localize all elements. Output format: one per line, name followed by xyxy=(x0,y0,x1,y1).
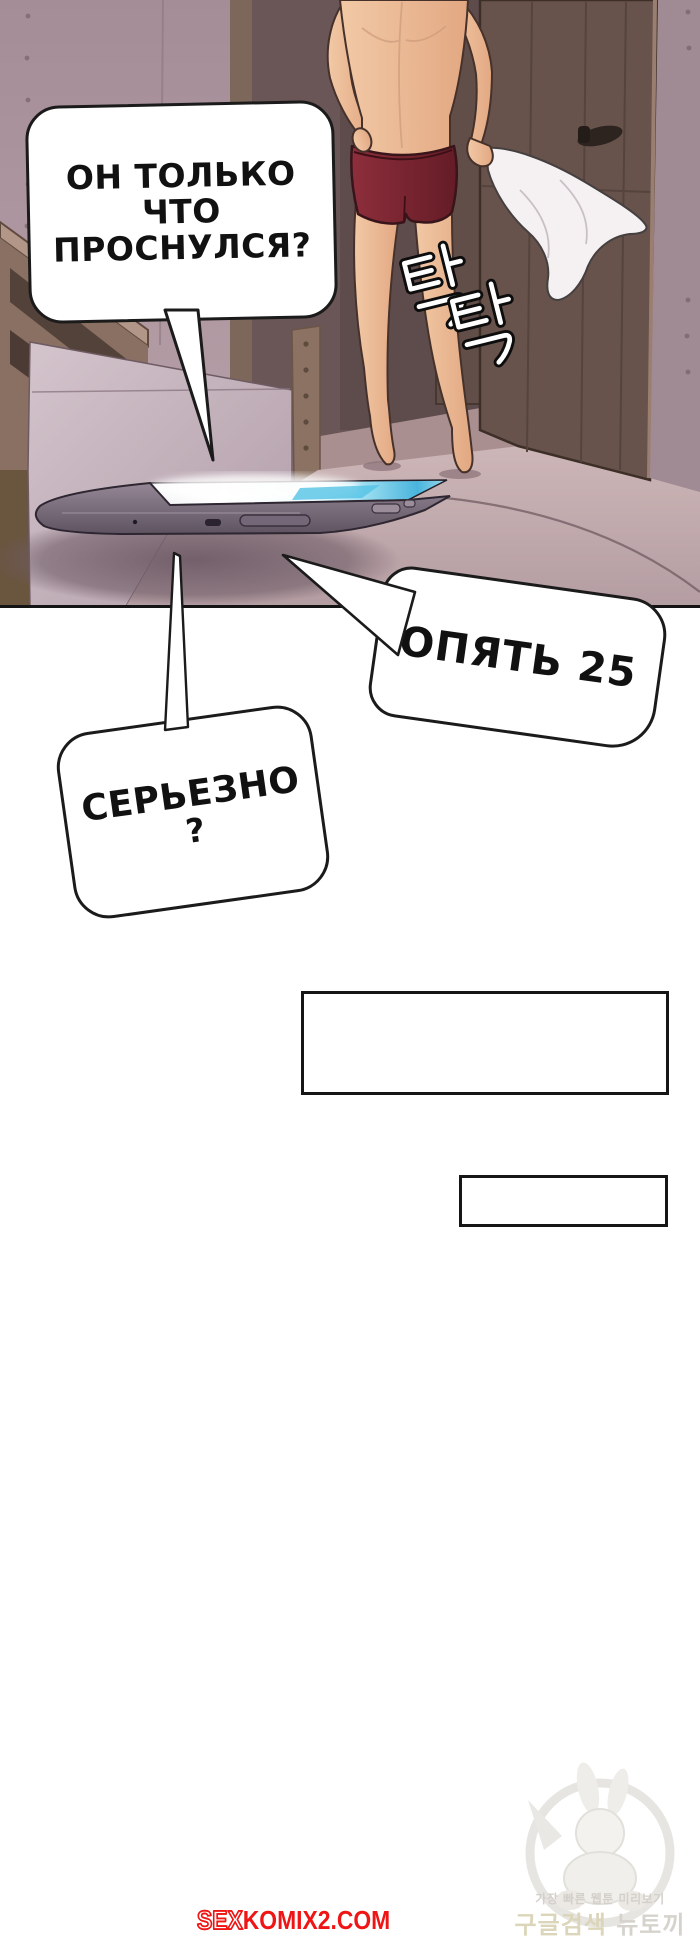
watermark-search-text: 구글검색 xyxy=(515,1911,607,1939)
bubble-line: ОПЯТЬ 25 xyxy=(396,619,639,697)
bubble-line: ЧТО xyxy=(142,193,221,231)
bubble-line: ? xyxy=(183,811,208,850)
phone-port xyxy=(205,519,221,526)
watermark-brand-line: 구글검색 뉴토끼 xyxy=(500,1905,700,1940)
logo-outlined-text: SEX xyxy=(197,1905,243,1935)
speech-bubble-he-just-woke-up: ОН ТОЛЬКО ЧТО ПРОСНУЛСЯ? xyxy=(25,100,338,324)
phone-speaker xyxy=(240,515,310,526)
comic-page: 탁 탁 xyxy=(0,0,700,1960)
phone-mic xyxy=(133,520,137,524)
bubble-line: ПРОСНУЛСЯ? xyxy=(53,227,312,269)
shorts-seam xyxy=(404,196,405,221)
foot-shadow xyxy=(363,461,401,471)
speech-bubble-seriously: СЕРЬЕЗНО ? xyxy=(52,701,334,923)
blank-caption-box xyxy=(301,991,669,1095)
blank-caption-box xyxy=(459,1175,668,1227)
bed-post xyxy=(292,326,320,484)
watermark-brand-text: 뉴토끼 xyxy=(616,1911,685,1939)
newtoki-watermark: 가장 빠른 웹툰 미리보기 구글검색 뉴토끼 xyxy=(500,1758,700,1948)
phone-button xyxy=(372,504,400,513)
right-wall xyxy=(650,0,700,492)
phone-button xyxy=(404,500,415,507)
bubble-line: ОН ТОЛЬКО xyxy=(65,155,296,196)
rabbit-girl-head xyxy=(576,1809,624,1857)
sexkomix-logo: SEXKOMIX2.COM xyxy=(197,1905,390,1936)
logo-solid-text: KOMIX2.COM xyxy=(243,1905,390,1935)
